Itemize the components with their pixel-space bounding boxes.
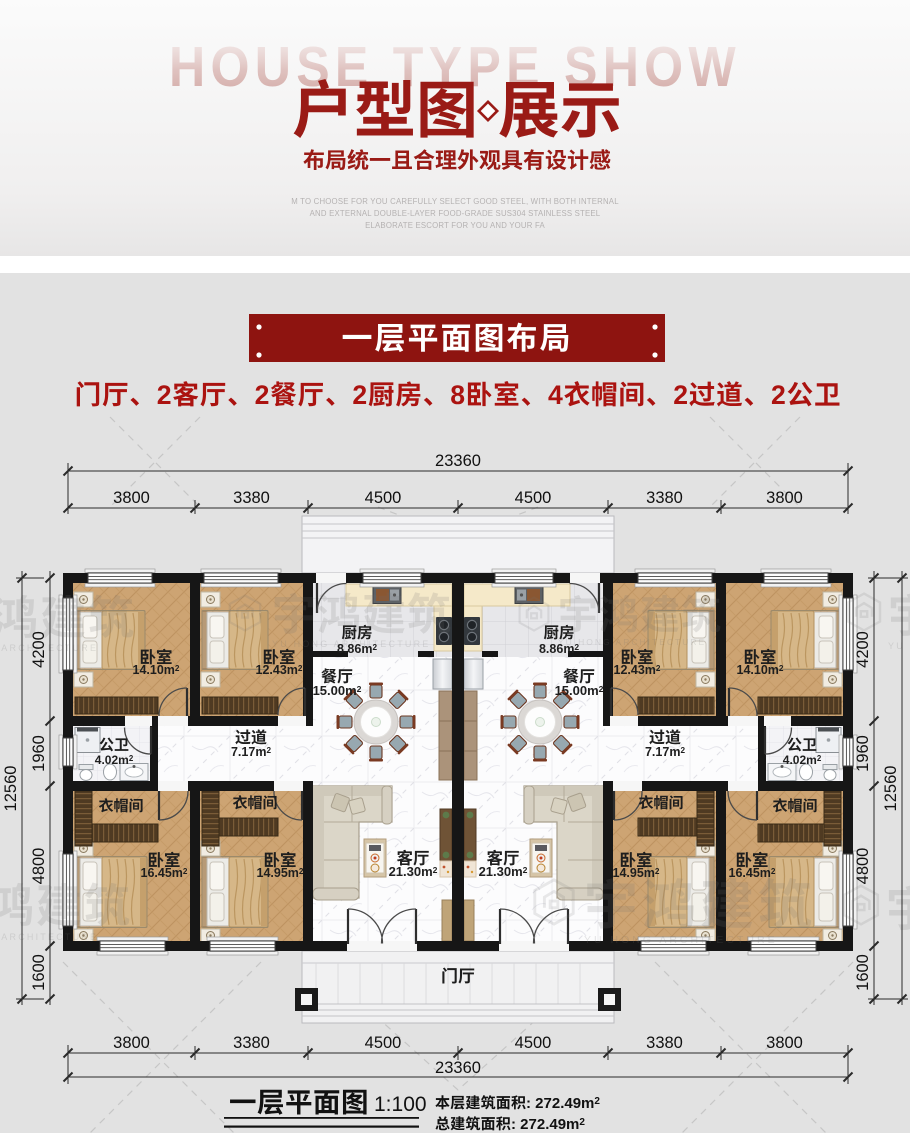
svg-text:7.17m2: 7.17m2 — [645, 745, 685, 759]
svg-text:4200: 4200 — [30, 631, 48, 668]
svg-text:4800: 4800 — [854, 848, 872, 885]
svg-text:2: 2 — [673, 380, 689, 410]
svg-text:21.30m2: 21.30m2 — [389, 864, 438, 879]
svg-text:4500: 4500 — [515, 489, 552, 507]
svg-text:16.45m2: 16.45m2 — [141, 866, 188, 880]
svg-text:AND EXTERNAL DOUBLE-LAYER FOOD: AND EXTERNAL DOUBLE-LAYER FOOD-GRADE SUS… — [310, 209, 601, 218]
svg-text:3800: 3800 — [113, 489, 150, 507]
svg-text:3380: 3380 — [646, 1034, 683, 1052]
svg-text:1600: 1600 — [854, 954, 872, 991]
svg-text:: 272.49m2: : 272.49m2 — [526, 1095, 600, 1112]
svg-text:4500: 4500 — [365, 489, 402, 507]
svg-text:2: 2 — [352, 380, 368, 410]
svg-text:14.10m2: 14.10m2 — [737, 663, 784, 677]
svg-text:4500: 4500 — [365, 1034, 402, 1052]
svg-text:3380: 3380 — [646, 489, 683, 507]
svg-text:1960: 1960 — [854, 735, 872, 772]
svg-text:7.17m2: 7.17m2 — [231, 745, 271, 759]
svg-text:2: 2 — [157, 380, 173, 410]
svg-text:ELABORATE ESCORT FOR YOU AND Y: ELABORATE ESCORT FOR YOU AND YOUR FA — [365, 221, 545, 230]
svg-text:8.86m2: 8.86m2 — [539, 642, 579, 656]
svg-text:3800: 3800 — [113, 1034, 150, 1052]
svg-text:12560: 12560 — [2, 766, 20, 812]
svg-text:1:100: 1:100 — [374, 1093, 427, 1116]
svg-text:HOUSE TYPE SHOW: HOUSE TYPE SHOW — [169, 35, 741, 99]
svg-text:ONG ARCHITECTURE: ONG ARCHITECTURE — [0, 932, 98, 942]
svg-text:3380: 3380 — [233, 489, 270, 507]
svg-text:4200: 4200 — [854, 631, 872, 668]
svg-text:23360: 23360 — [435, 1059, 481, 1077]
svg-text:12.43m2: 12.43m2 — [256, 663, 303, 677]
svg-text:14.95m2: 14.95m2 — [613, 866, 660, 880]
svg-text:14.10m2: 14.10m2 — [133, 663, 180, 677]
svg-text:21.30m2: 21.30m2 — [479, 864, 528, 879]
svg-text:3800: 3800 — [766, 489, 803, 507]
svg-text:: 272.49m2: : 272.49m2 — [511, 1116, 585, 1133]
svg-text:YU HONG A: YU HONG A — [888, 641, 910, 651]
svg-text:15.00m2: 15.00m2 — [313, 683, 362, 698]
svg-text:YU HONG ARCHITECTURE: YU HONG ARCHITECTURE — [558, 637, 706, 647]
svg-text:16.45m2: 16.45m2 — [729, 866, 776, 880]
svg-text:8.86m2: 8.86m2 — [337, 642, 377, 656]
svg-text:4500: 4500 — [515, 1034, 552, 1052]
svg-text:2: 2 — [771, 380, 787, 410]
svg-text:15.00m2: 15.00m2 — [555, 683, 604, 698]
svg-text:ONG ARCHITECTURE: ONG ARCHITECTURE — [0, 643, 98, 653]
svg-text:14.95m2: 14.95m2 — [257, 866, 304, 880]
svg-text:3380: 3380 — [233, 1034, 270, 1052]
svg-text:12.43m2: 12.43m2 — [614, 663, 661, 677]
svg-text:4.02m2: 4.02m2 — [95, 753, 134, 767]
svg-text:M TO CHOOSE FOR YOU CAREFULLY: M TO CHOOSE FOR YOU CAREFULLY SELECT GOO… — [291, 197, 619, 206]
svg-text:8: 8 — [450, 380, 466, 410]
svg-text:4.02m2: 4.02m2 — [783, 753, 822, 767]
svg-text:2: 2 — [255, 380, 271, 410]
svg-text:YU HONG ARCHITECTURE: YU HONG ARCHITECTURE — [584, 934, 778, 946]
svg-text:23360: 23360 — [435, 452, 481, 470]
svg-text:1600: 1600 — [30, 954, 48, 991]
svg-text:4: 4 — [548, 380, 564, 410]
svg-text:12560: 12560 — [882, 766, 900, 812]
svg-text:4800: 4800 — [30, 848, 48, 885]
svg-text:1960: 1960 — [30, 735, 48, 772]
svg-text:3800: 3800 — [766, 1034, 803, 1052]
